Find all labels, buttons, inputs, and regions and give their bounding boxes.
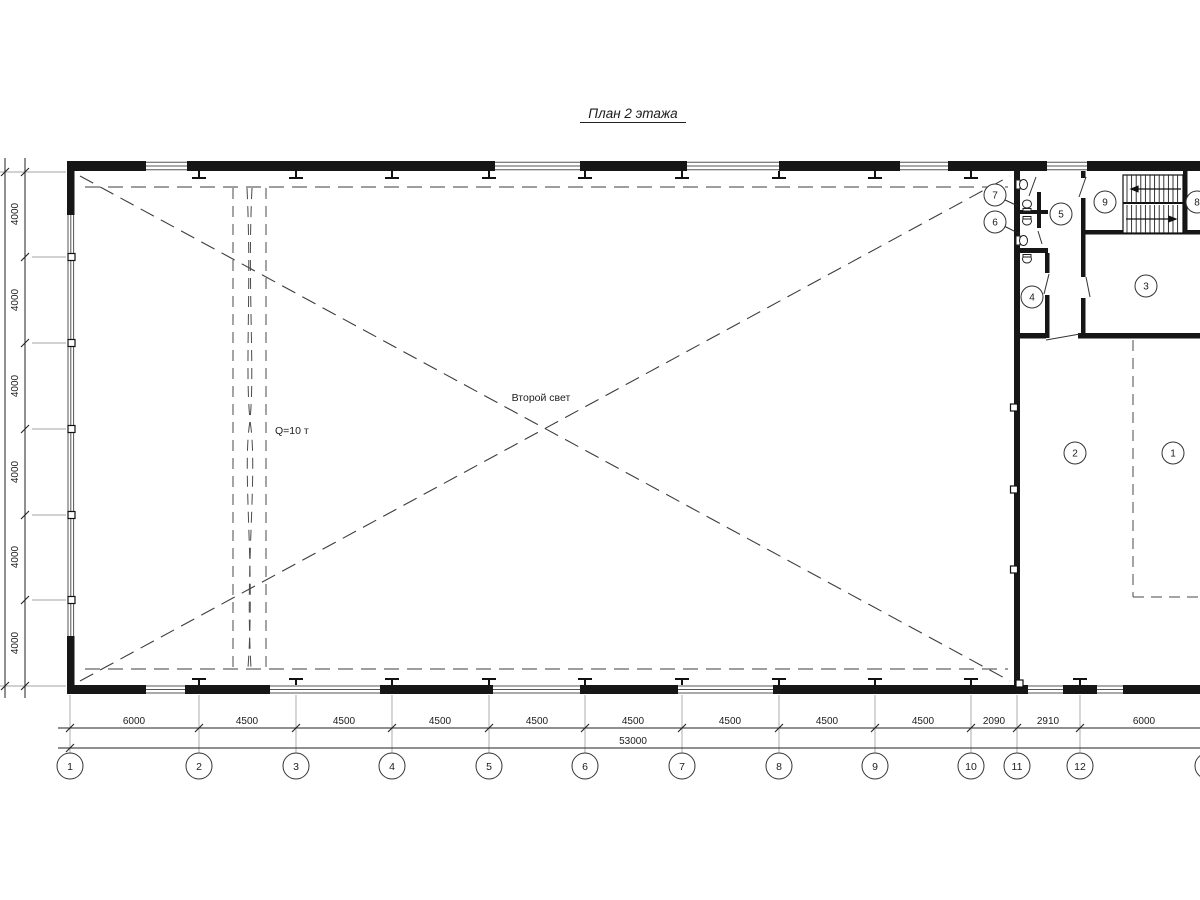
svg-text:4000: 4000	[10, 288, 21, 311]
grid-bubble: 5	[476, 753, 502, 779]
floor-plan-sheet: План 2 этажа	[0, 0, 1200, 900]
top-wall	[67, 161, 1200, 171]
sink-icon	[1023, 200, 1032, 211]
stairs	[1123, 175, 1183, 233]
room-bubble: 7	[984, 184, 1006, 206]
grid-bubble: 4	[379, 753, 405, 779]
svg-text:4500: 4500	[526, 716, 549, 727]
right-wing-walls	[230, 171, 1200, 694]
svg-text:1: 1	[67, 761, 73, 773]
bottom-dimension-block: 6000 4500 4500 4500 4500 4500 4500 4500 …	[57, 695, 1200, 779]
svg-text:2: 2	[196, 761, 202, 773]
second-light-label: Второй свет	[512, 392, 571, 404]
svg-text:4: 4	[389, 761, 395, 773]
svg-text:9: 9	[872, 761, 878, 773]
svg-text:4: 4	[1029, 293, 1035, 304]
room-bubble: 8	[1186, 191, 1200, 213]
svg-text:4500: 4500	[816, 716, 839, 727]
sheet-title: План 2 этажа	[580, 106, 686, 123]
svg-text:4500: 4500	[236, 716, 259, 727]
svg-text:6: 6	[992, 218, 998, 229]
svg-text:3: 3	[293, 761, 299, 773]
room-bubble: 4	[1021, 286, 1043, 308]
svg-text:5: 5	[1058, 210, 1064, 221]
svg-text:6: 6	[582, 761, 588, 773]
svg-text:4500: 4500	[912, 716, 935, 727]
grid-bubble: 7	[669, 753, 695, 779]
toilet-icon	[1016, 236, 1028, 246]
grid-bubble: 10	[958, 753, 984, 779]
svg-text:4000: 4000	[10, 460, 21, 483]
page-title: План 2 этажа	[588, 106, 678, 121]
grid-bubble: 9	[862, 753, 888, 779]
svg-text:7: 7	[679, 761, 685, 773]
room-bubble: 5	[1050, 203, 1072, 225]
grid-bubble: 8	[766, 753, 792, 779]
left-dimension-block: 4000 4000 4000 4000 4000 4000 24000	[0, 158, 66, 698]
grid-bubble: 6	[572, 753, 598, 779]
svg-text:2910: 2910	[1037, 716, 1060, 727]
total-width-dim: 53000	[619, 736, 647, 747]
grid-bubble: 3	[283, 753, 309, 779]
sink-icon	[1023, 217, 1032, 226]
total-height-dim: 24000	[0, 415, 2, 443]
svg-text:4000: 4000	[10, 631, 21, 654]
svg-text:4000: 4000	[10, 202, 21, 225]
svg-text:4000: 4000	[10, 545, 21, 568]
grid-column-bubbles: 1 2 3 4 5 6 7 8 9 10 11 12 13	[57, 753, 1200, 779]
svg-text:4500: 4500	[622, 716, 645, 727]
svg-text:12: 12	[1074, 761, 1086, 773]
room-bubble: 3	[1135, 275, 1157, 297]
room1-dashed-boundary	[1133, 340, 1200, 597]
svg-text:8: 8	[776, 761, 782, 773]
bottom-dimension-values: 6000 4500 4500 4500 4500 4500 4500 4500 …	[123, 716, 1156, 747]
main-hall-dashed-outline	[80, 176, 1010, 681]
svg-text:1: 1	[1170, 449, 1176, 460]
crane-capacity-label: Q=10 т	[275, 425, 309, 437]
grid-bubble: 13	[1195, 753, 1200, 779]
svg-text:10: 10	[965, 761, 977, 773]
room-bubble: 9	[1094, 191, 1116, 213]
toilet-icon	[1016, 180, 1028, 190]
svg-text:4500: 4500	[429, 716, 452, 727]
sink-icon	[1023, 255, 1032, 264]
svg-text:9: 9	[1102, 198, 1108, 209]
svg-text:8: 8	[1194, 198, 1200, 209]
svg-text:5: 5	[486, 761, 492, 773]
svg-text:7: 7	[992, 191, 998, 202]
grid-bubble: 11	[1004, 753, 1030, 779]
left-wall	[67, 161, 75, 694]
room-bubble: 2	[1064, 442, 1086, 464]
svg-text:6000: 6000	[1133, 716, 1156, 727]
svg-text:2090: 2090	[983, 716, 1006, 727]
grid-bubble: 1	[57, 753, 83, 779]
svg-text:4500: 4500	[719, 716, 742, 727]
room-bubble: 6	[984, 211, 1006, 233]
svg-text:6000: 6000	[123, 716, 146, 727]
svg-text:3: 3	[1143, 282, 1149, 293]
room-bubble: 1	[1162, 442, 1184, 464]
column-tee-marks	[192, 171, 1087, 685]
svg-text:11: 11	[1012, 761, 1023, 773]
svg-text:2: 2	[1072, 449, 1078, 460]
grid-bubble: 2	[186, 753, 212, 779]
svg-text:4000: 4000	[10, 374, 21, 397]
bottom-wall	[67, 685, 1200, 694]
left-dimension-values: 4000 4000 4000 4000 4000 4000 24000	[0, 202, 21, 654]
door-leaves	[230, 177, 1090, 540]
crane-runway-lines	[233, 188, 266, 668]
svg-text:4500: 4500	[333, 716, 356, 727]
grid-bubble: 12	[1067, 753, 1093, 779]
